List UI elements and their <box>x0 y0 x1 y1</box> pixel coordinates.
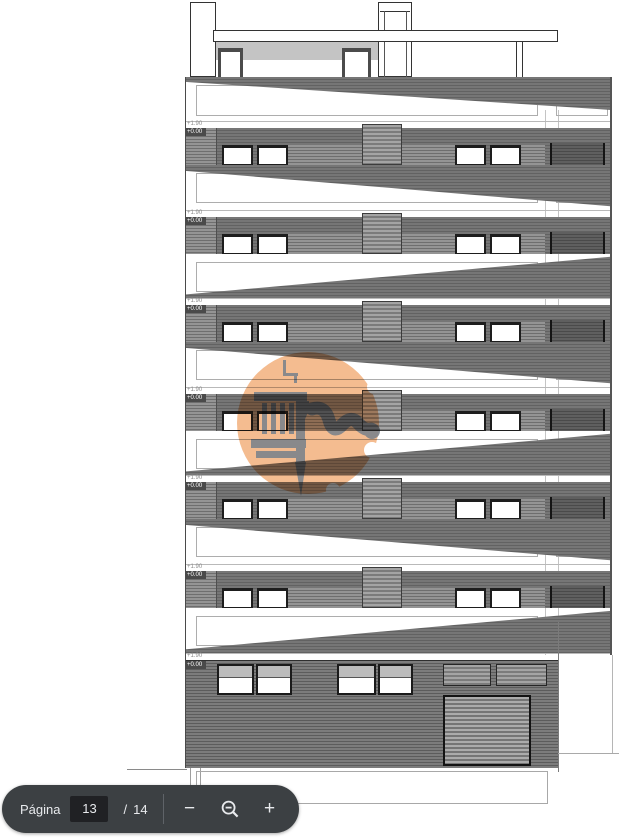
stair-tower-glazing <box>550 232 605 254</box>
window <box>455 411 486 431</box>
window <box>222 234 253 254</box>
page-separator: / <box>123 802 127 817</box>
roof-pergola-beam <box>213 30 558 42</box>
facade-panel <box>402 588 455 608</box>
toolbar-divider <box>163 794 164 824</box>
facade-panel <box>402 499 455 519</box>
level-label: +1.90 <box>187 475 202 482</box>
garage-transom <box>443 664 491 686</box>
window <box>222 145 253 165</box>
level-line <box>185 121 612 122</box>
level-label: +1.90 <box>187 387 202 394</box>
facade-panel <box>288 234 362 254</box>
facade-left-edge <box>185 77 186 768</box>
window <box>490 588 521 608</box>
window <box>257 322 288 342</box>
agency-watermark <box>230 345 388 503</box>
window <box>490 411 521 431</box>
level-line <box>185 298 612 299</box>
level-line <box>185 564 612 565</box>
magnifier-minus-icon <box>220 799 240 819</box>
spandrel-region <box>185 519 612 564</box>
ground-window <box>256 664 292 695</box>
facade-panel <box>402 234 455 254</box>
facade-panel <box>521 499 545 519</box>
vent-stack <box>362 124 402 165</box>
window <box>455 588 486 608</box>
window-band: +0.00 <box>185 305 612 342</box>
base-level-label: +0.00 <box>185 128 206 136</box>
window <box>257 588 288 608</box>
window <box>490 322 521 342</box>
window-band: +0.00 <box>185 217 612 254</box>
floor-band: +1.90 +0.00 <box>185 210 612 298</box>
window <box>455 322 486 342</box>
window <box>455 499 486 519</box>
window <box>257 145 288 165</box>
spandrel-region <box>185 254 612 298</box>
total-pages: 14 <box>133 802 147 817</box>
page-number-input[interactable]: 13 <box>70 796 108 822</box>
base-level-label: +0.00 <box>185 394 206 402</box>
vent-stack <box>362 301 402 342</box>
level-line <box>185 653 612 654</box>
facade-panel <box>521 588 545 608</box>
spandrel-region <box>185 165 612 210</box>
chimney-line <box>406 11 407 77</box>
roof-wedge-band <box>185 77 612 121</box>
base-level-label: +0.00 <box>185 571 206 579</box>
base-level-label: +0.00 <box>185 217 206 225</box>
level-label: +1.90 <box>187 298 202 305</box>
vent-stack <box>362 213 402 254</box>
window-band: +0.00 <box>185 128 612 165</box>
facade-panel <box>288 145 362 165</box>
page-label: Página <box>20 802 60 817</box>
facade-panel <box>521 322 545 342</box>
roof-opening <box>342 48 371 77</box>
window <box>257 234 288 254</box>
roof-opening <box>218 48 243 77</box>
window-band: +0.00 <box>185 571 612 608</box>
stair-tower-glazing <box>550 320 605 342</box>
base-level-label: +0.00 <box>185 305 206 313</box>
base-level-label: +0.00 <box>185 661 206 669</box>
window <box>490 499 521 519</box>
base-level-label: +0.00 <box>185 482 206 490</box>
facade-panel <box>402 322 455 342</box>
facade-panel <box>402 145 455 165</box>
zoom-out-button[interactable]: − <box>177 796 203 822</box>
level-label: +1.90 <box>187 564 202 571</box>
level-label: +1.90 <box>187 653 202 660</box>
stair-tower-glazing <box>550 586 605 608</box>
facade-panel <box>521 411 545 431</box>
window <box>455 234 486 254</box>
zoom-reset-button[interactable] <box>217 796 243 822</box>
zoom-in-button[interactable]: + <box>257 796 283 822</box>
stair-tower-glazing <box>550 143 605 165</box>
window <box>490 234 521 254</box>
window <box>455 145 486 165</box>
garage-door <box>443 695 531 766</box>
stair-tower-glazing <box>550 409 605 431</box>
floor-band: +1.90 +0.00 <box>185 564 612 653</box>
roof-post <box>516 42 523 77</box>
facade-panel <box>288 322 362 342</box>
ground-window <box>337 664 376 695</box>
ground-window <box>217 664 254 695</box>
facade-panel <box>521 234 545 254</box>
facade-panel <box>288 588 362 608</box>
stair-tower-glazing <box>550 497 605 519</box>
spandrel-region <box>185 608 612 653</box>
pdf-preview-page: +1.90 +0.00 +1.90 <box>0 0 619 838</box>
garage-transom <box>496 664 547 686</box>
window <box>222 588 253 608</box>
window <box>490 145 521 165</box>
ground-window <box>378 664 413 695</box>
ground-line-right <box>558 753 619 754</box>
site-line <box>558 622 559 772</box>
pdf-viewer-toolbar: Página 13 / 14 − + <box>2 785 299 833</box>
level-label: +1.90 <box>187 121 202 128</box>
ground-band: +0.00 <box>185 660 558 768</box>
site-line <box>612 655 613 753</box>
level-line <box>185 210 612 211</box>
floor-band: +1.90 +0.00 <box>185 121 612 210</box>
facade-panel <box>402 411 455 431</box>
vent-stack <box>362 567 402 608</box>
window <box>222 322 253 342</box>
facade-panel <box>521 145 545 165</box>
chimney-line <box>384 11 385 77</box>
level-label: +1.90 <box>187 210 202 217</box>
facade-right-edge <box>610 77 612 655</box>
ground-line-left <box>127 769 187 770</box>
